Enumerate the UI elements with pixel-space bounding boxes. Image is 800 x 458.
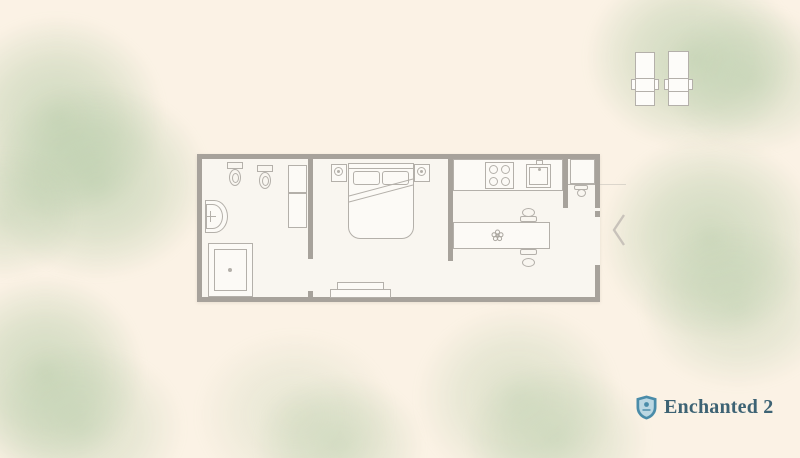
- wall-right-upper: [595, 154, 600, 208]
- lounger-frame: [635, 52, 655, 106]
- pillow: [382, 171, 409, 185]
- wall-bathroom-door-stub: [308, 291, 313, 297]
- toilet-bowl-inner: [232, 173, 239, 183]
- tree-blob: [0, 345, 185, 458]
- stove-burner: [501, 165, 510, 174]
- shower-drain: [228, 268, 232, 272]
- storage-cabinet-upper: [288, 165, 307, 193]
- lounger-fold-line: [635, 91, 655, 92]
- dining-chair-back: [520, 249, 537, 255]
- lounger-armrest: [631, 79, 636, 90]
- pillow: [353, 171, 380, 185]
- desk-chair-seat: [577, 189, 586, 197]
- lounger-armrest: [664, 79, 669, 90]
- nightstand-lamp-dot: [420, 170, 423, 173]
- toilet-tank: [227, 162, 243, 169]
- chevron-left-icon: [610, 212, 628, 248]
- lounger-fold-line: [668, 91, 689, 92]
- desk: [570, 159, 595, 184]
- lounger-armrest: [654, 79, 659, 90]
- shield-icon: [636, 395, 657, 420]
- page-background: Enchanted 2: [0, 0, 800, 458]
- basin-faucet: [210, 211, 211, 222]
- bench-cushion: [337, 282, 384, 290]
- wall-bathroom-bedroom: [308, 159, 313, 259]
- brand-logo: Enchanted 2: [636, 395, 773, 420]
- floor-plan: [197, 154, 600, 302]
- stove-burner: [489, 177, 498, 186]
- bidet-bowl-inner: [262, 176, 269, 186]
- bidet-tank: [257, 165, 273, 172]
- lounger-fold-line: [668, 78, 689, 79]
- dining-chair-seat: [522, 258, 535, 267]
- wall-left: [197, 154, 202, 302]
- carousel-prev-button[interactable]: [606, 211, 632, 251]
- wall-right-lower: [595, 265, 600, 302]
- wall-right-door-stub: [595, 211, 600, 217]
- lounger-fold-line: [635, 78, 655, 79]
- stove-burner: [501, 177, 510, 186]
- kitchen-sink-faucet: [536, 160, 543, 165]
- kitchen-sink-faucet-dot: [538, 168, 541, 171]
- bench-base: [330, 289, 391, 298]
- storage-cabinet-lower: [288, 193, 307, 228]
- flower-centerpiece-icon: [491, 229, 504, 242]
- dining-chair-back: [520, 216, 537, 222]
- stove-burner: [489, 165, 498, 174]
- nightstand-lamp-dot: [337, 170, 340, 173]
- brand-logo-text: Enchanted 2: [664, 396, 773, 419]
- bed-headboard-line: [349, 168, 413, 169]
- lounger-armrest: [688, 79, 693, 90]
- wall-bottom: [197, 297, 600, 302]
- terrace-edge-line: [600, 184, 626, 185]
